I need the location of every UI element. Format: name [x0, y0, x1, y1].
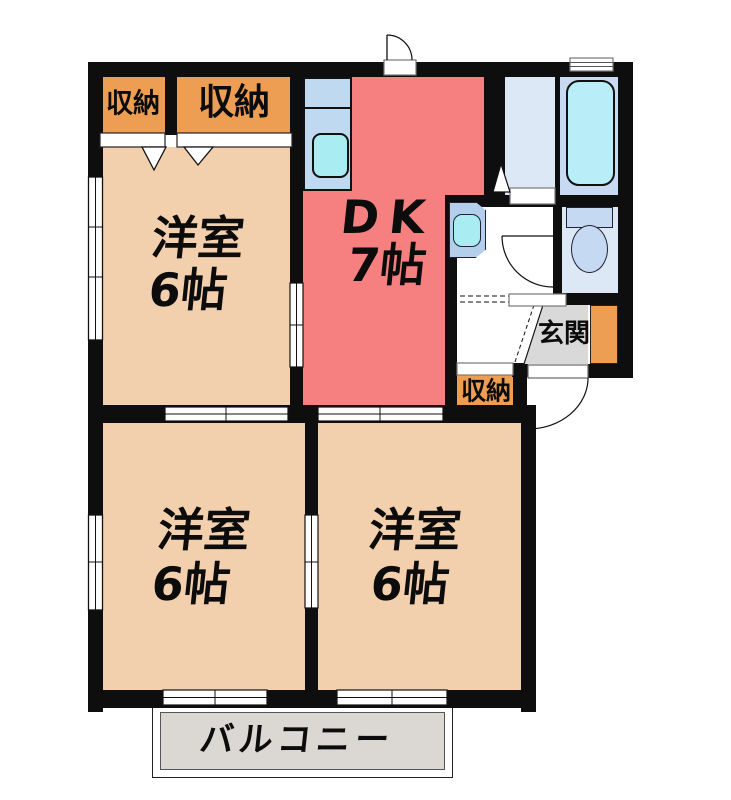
- label-closet-top-small: 収納: [106, 91, 160, 118]
- wall-toilet-left: [553, 207, 562, 295]
- wall-closetmid-right: [513, 363, 527, 408]
- kitchen-counter-divider: [305, 107, 350, 109]
- wall-bedroom1-bottom: [88, 405, 305, 423]
- entrance-door: [528, 365, 588, 378]
- wall-bedroom1-dk: [290, 62, 303, 410]
- genkan-step-dashed-line: [515, 305, 534, 362]
- washbasin-bowl-icon: [453, 214, 481, 247]
- wall-dk-bottom: [303, 405, 457, 423]
- bathtub-icon: [566, 80, 615, 186]
- label-closet-top-large: 収納: [198, 85, 270, 121]
- closet-large-door: [177, 133, 292, 147]
- wall-closet-divider: [165, 75, 177, 135]
- entrance-door-swing-arc: [528, 378, 588, 429]
- label-bedroom-bottom-left-size: 6帖: [150, 561, 233, 607]
- label-bedroom-bottom-right-size: 6帖: [369, 561, 452, 607]
- label-bedroom-top-left-size: 6帖: [147, 267, 230, 313]
- back-door-swing-arc: [387, 35, 412, 60]
- wall-right-lower: [521, 405, 536, 712]
- wall-bath-divider: [555, 75, 560, 197]
- label-balcony: バルコニー: [198, 723, 396, 757]
- label-closet-middle: 収納: [461, 379, 511, 404]
- kitchen-sink-icon: [312, 133, 349, 178]
- label-dk-size: 7帖: [346, 242, 429, 288]
- wall-genkan-bottom: [588, 364, 633, 378]
- label-bedroom-top-left-name: 洋室: [150, 215, 247, 261]
- shoe-cabinet: [590, 305, 618, 364]
- wall-right-upper: [618, 62, 633, 378]
- closet-small-door: [100, 133, 165, 147]
- wall-rooms-divider: [305, 405, 318, 698]
- wall-dk-changing: [484, 75, 505, 197]
- room-changing: [505, 77, 555, 195]
- floorplan: 収納 収納 洋室 6帖 DK 7帖 収納 玄関 洋室 6帖 洋室 6帖 バルコニ…: [0, 0, 731, 800]
- label-dk-name: DK: [339, 194, 438, 240]
- wall-left: [88, 62, 103, 712]
- wall-toilet-bottom: [556, 293, 633, 305]
- washroom-door-swing-arc: [502, 236, 553, 287]
- label-bedroom-bottom-right-name: 洋室: [367, 507, 464, 553]
- toilet-bowl-icon: [571, 225, 608, 273]
- label-entrance: 玄関: [538, 321, 590, 347]
- label-bedroom-bottom-left-name: 洋室: [156, 507, 253, 553]
